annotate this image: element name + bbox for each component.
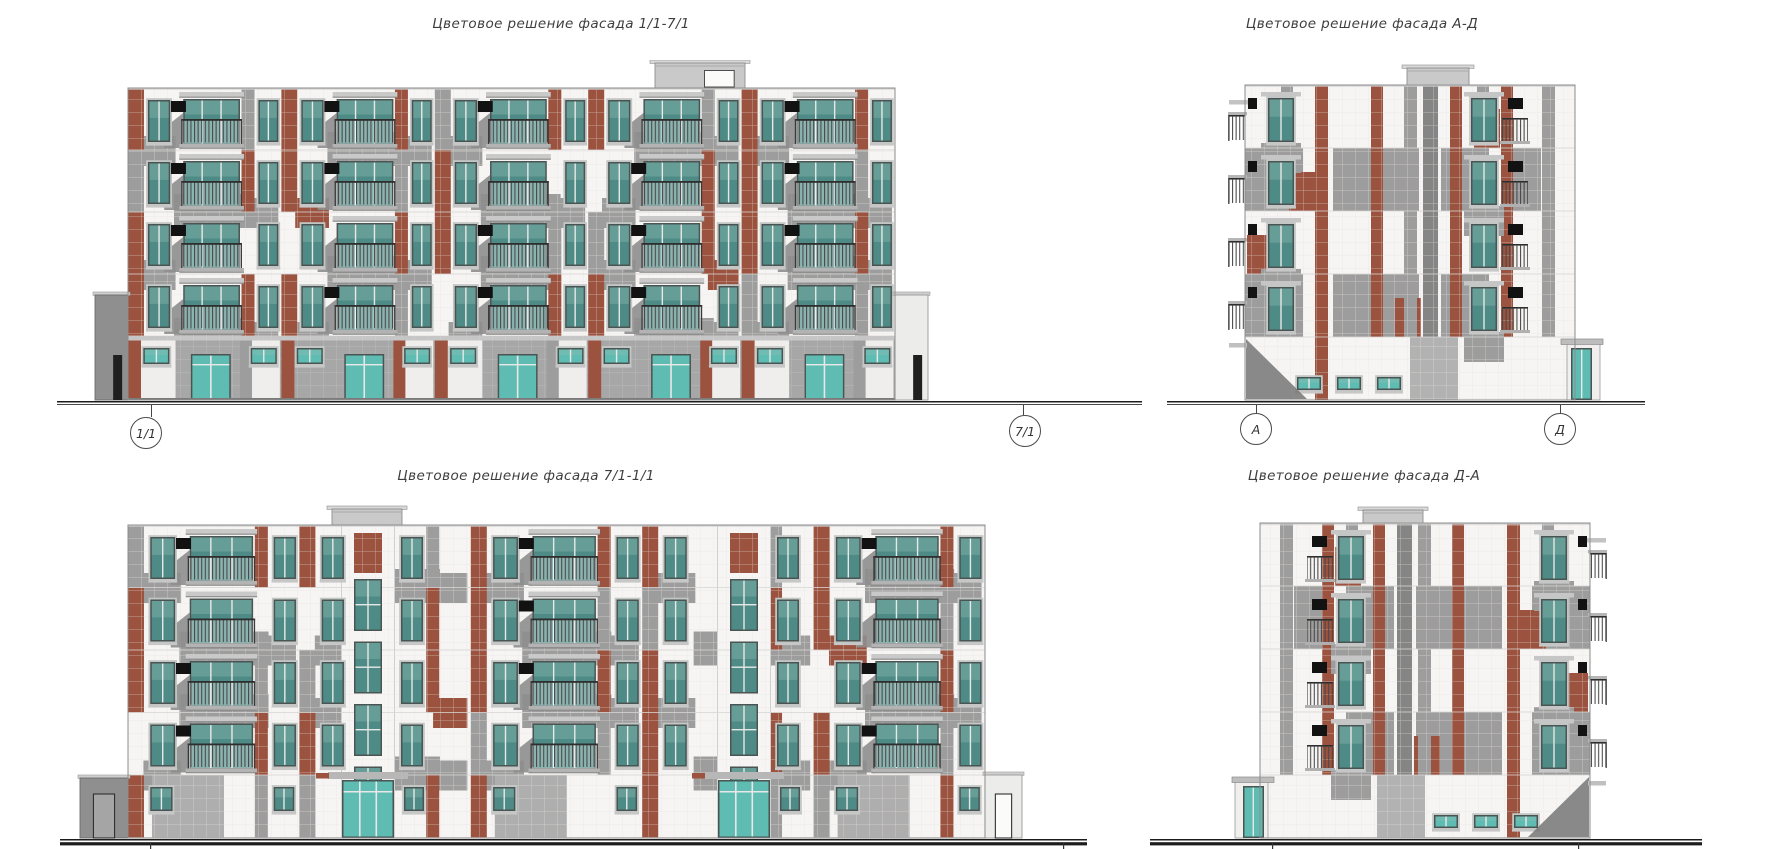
- axis-bubble-a: А: [1240, 413, 1272, 445]
- axis-leader-d: [1560, 405, 1561, 413]
- axis-bubble-d: Д: [1544, 413, 1576, 445]
- axis-leader-1-1: [151, 405, 152, 417]
- title-facade-a-d: Цветовое решение фасада А-Д: [1246, 16, 1478, 32]
- facade-1-1-7-1-drawing: [50, 60, 1150, 405]
- axis-label-7-1: 7/1: [1015, 424, 1035, 439]
- axis-label-1-1: 1/1: [136, 426, 156, 441]
- axis-leader-7-1: [1023, 405, 1024, 415]
- axis-leader-a: [1256, 405, 1257, 413]
- axis-label-a: А: [1252, 422, 1261, 437]
- facade-a-d-drawing: [1160, 60, 1720, 405]
- facade-7-1-1-1-drawing: [50, 460, 1150, 849]
- facade-d-a-drawing: [1150, 460, 1720, 849]
- title-facade-1-1-7-1: Цветовое решение фасада 1/1-7/1: [432, 16, 690, 32]
- axis-bubble-1-1: 1/1: [130, 417, 162, 449]
- axis-label-d: Д: [1555, 422, 1565, 437]
- elevation-sheet: Цветовое решение фасада 1/1-7/1 Цветовое…: [0, 0, 1779, 849]
- axis-bubble-7-1: 7/1: [1009, 415, 1041, 447]
